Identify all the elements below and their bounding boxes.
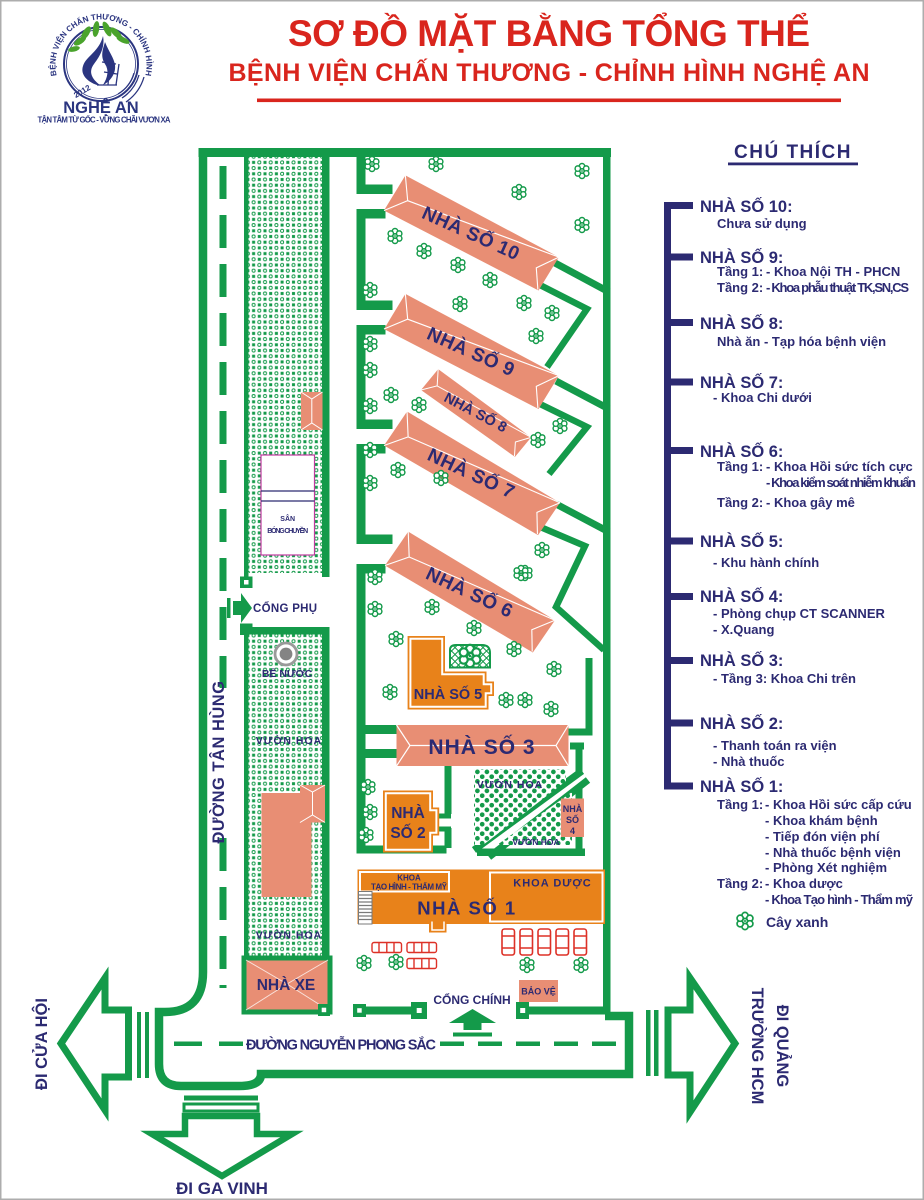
svg-text:- Tầng 3: Khoa Chi trên: - Tầng 3: Khoa Chi trên — [713, 671, 856, 686]
svg-text:NHÀ SỐ 3: NHÀ SỐ 3 — [428, 735, 535, 759]
svg-text:- Khoa Chi dưới: - Khoa Chi dưới — [713, 390, 812, 405]
svg-text:ĐI GA VINH: ĐI GA VINH — [176, 1179, 268, 1198]
svg-text:ĐƯỜNG TÂN HÙNG: ĐƯỜNG TÂN HÙNG — [209, 680, 228, 843]
svg-text:ĐƯỜNG NGUYỄN PHONG SẮC: ĐƯỜNG NGUYỄN PHONG SẮC — [246, 1036, 437, 1054]
svg-text:- Tiếp đón viện phí: - Tiếp đón viện phí — [765, 829, 880, 844]
svg-text:SƠ ĐỒ MẶT BẰNG TỔNG THỂ: SƠ ĐỒ MẶT BẰNG TỔNG THỂ — [288, 11, 810, 54]
svg-text:Tầng 2:: Tầng 2: — [717, 280, 763, 295]
svg-text:2012: 2012 — [72, 83, 92, 100]
svg-text:BỂ NƯỚC: BỂ NƯỚC — [262, 667, 313, 680]
svg-text:- Nhà thuốc: - Nhà thuốc — [713, 754, 785, 769]
svg-text:NHÀ SỐ 4:: NHÀ SỐ 4: — [700, 586, 783, 606]
svg-text:- Khoa khám bệnh: - Khoa khám bệnh — [765, 813, 878, 828]
svg-text:- Nhà thuốc bệnh viện: - Nhà thuốc bệnh viện — [765, 845, 901, 860]
svg-text:NHÀ SỐ 8: NHÀ SỐ 8 — [441, 388, 510, 436]
svg-text:- Phòng chụp CT SCANNER: - Phòng chụp CT SCANNER — [713, 606, 885, 621]
svg-text:TRƯỜNG HCM: TRƯỜNG HCM — [748, 988, 767, 1105]
svg-text:NHÀ SỐ 3:: NHÀ SỐ 3: — [700, 650, 783, 670]
svg-text:KHOA DƯỢC: KHOA DƯỢC — [513, 878, 591, 890]
svg-text:VƯỜN HOA: VƯỜN HOA — [256, 734, 323, 747]
svg-text:NHÀ SỐ 7:: NHÀ SỐ 7: — [700, 372, 783, 392]
svg-text:Tầng 1:: Tầng 1: — [717, 264, 763, 279]
svg-text:- Khoa kiểm soát nhiễm khuẩn: - Khoa kiểm soát nhiễm khuẩn — [766, 475, 916, 490]
svg-text:KHOA: KHOA — [397, 874, 421, 883]
svg-text:- Khoa Nội TH - PHCN: - Khoa Nội TH - PHCN — [766, 264, 900, 279]
svg-text:NGHỆ AN: NGHỆ AN — [63, 98, 138, 117]
svg-text:BẢO VỆ: BẢO VỆ — [521, 986, 556, 997]
svg-text:SỐ: SỐ — [566, 814, 579, 825]
svg-text:NHÀ SỐ 1: NHÀ SỐ 1 — [417, 898, 516, 919]
svg-text:NHÀ SỐ 5:: NHÀ SỐ 5: — [700, 531, 783, 551]
svg-text:- Phòng Xét nghiệm: - Phòng Xét nghiệm — [765, 860, 887, 875]
svg-text:NHÀ SỐ 2:: NHÀ SỐ 2: — [700, 713, 783, 733]
svg-text:ĐI CỬA HỘI: ĐI CỬA HỘI — [32, 998, 51, 1090]
svg-text:CỔNG PHỤ: CỔNG PHỤ — [253, 602, 317, 615]
svg-text:VƯỜN HOA: VƯỜN HOA — [512, 836, 559, 847]
svg-text:Tầng 2:: Tầng 2: — [717, 495, 763, 510]
svg-text:VƯỜN HOA: VƯỜN HOA — [477, 778, 544, 791]
svg-text:Tầng 1:: Tầng 1: — [717, 797, 763, 812]
svg-text:NHÀ: NHÀ — [563, 804, 583, 814]
svg-text:Chưa sử dụng: Chưa sử dụng — [717, 216, 807, 231]
svg-text:VƯỜN HOA: VƯỜN HOA — [256, 929, 323, 942]
svg-text:- Khoa gây mê: - Khoa gây mê — [766, 495, 855, 510]
svg-text:NHÀ SỐ 5: NHÀ SỐ 5 — [414, 685, 483, 703]
svg-text:Tầng 2:: Tầng 2: — [717, 876, 763, 891]
svg-text:Tầng 1:: Tầng 1: — [717, 459, 763, 474]
svg-text:- Khoa phẫu thuật TK,SN,CS: - Khoa phẫu thuật TK,SN,CS — [766, 280, 909, 295]
svg-text:NHÀ SỐ 8:: NHÀ SỐ 8: — [700, 313, 783, 333]
svg-text:NHÀ: NHÀ — [391, 805, 425, 822]
svg-text:NHÀ SỐ 6:: NHÀ SỐ 6: — [700, 441, 783, 461]
svg-text:Nhà ăn - Tạp hóa bệnh viện: Nhà ăn - Tạp hóa bệnh viện — [717, 334, 886, 349]
svg-text:SỐ 2: SỐ 2 — [390, 824, 425, 842]
svg-text:NHÀ SỐ 1:: NHÀ SỐ 1: — [700, 776, 783, 796]
svg-text:NHÀ SỐ 10:: NHÀ SỐ 10: — [700, 196, 793, 216]
svg-text:CỔNG CHÍNH: CỔNG CHÍNH — [433, 992, 510, 1007]
svg-text:Cây xanh: Cây xanh — [766, 914, 828, 930]
svg-text:TẬN TÂM TỪ GỐC - VỮNG CHÃI VƯƠ: TẬN TÂM TỪ GỐC - VỮNG CHÃI VƯƠN XA — [38, 115, 171, 125]
svg-text:NHÀ XE: NHÀ XE — [257, 977, 316, 994]
svg-text:4: 4 — [570, 826, 575, 836]
svg-text:SÂN: SÂN — [280, 514, 295, 523]
svg-text:- Khu hành chính: - Khu hành chính — [713, 555, 819, 570]
svg-text:CHÚ THÍCH: CHÚ THÍCH — [734, 141, 852, 163]
svg-text:BỆNH VIỆN CHẤN THƯƠNG - CHỈNH: BỆNH VIỆN CHẤN THƯƠNG - CHỈNH HÌNH NGHỆ … — [229, 57, 870, 87]
svg-text:- Khoa Tạo hình - Thẩm mỹ: - Khoa Tạo hình - Thẩm mỹ — [765, 892, 914, 907]
svg-text:- Khoa dược: - Khoa dược — [765, 876, 843, 891]
svg-text:- X.Quang: - X.Quang — [713, 622, 774, 637]
svg-text:TẠO HÌNH - THẨM MỸ: TẠO HÌNH - THẨM MỸ — [371, 883, 448, 892]
svg-text:- Thanh toán ra viện: - Thanh toán ra viện — [713, 738, 837, 753]
svg-text:- Khoa Hồi sức tích cực: - Khoa Hồi sức tích cực — [766, 459, 913, 474]
svg-text:ĐI QUẢNG: ĐI QUẢNG — [773, 1005, 792, 1088]
svg-text:- Khoa Hồi sức cấp cứu: - Khoa Hồi sức cấp cứu — [765, 797, 912, 812]
